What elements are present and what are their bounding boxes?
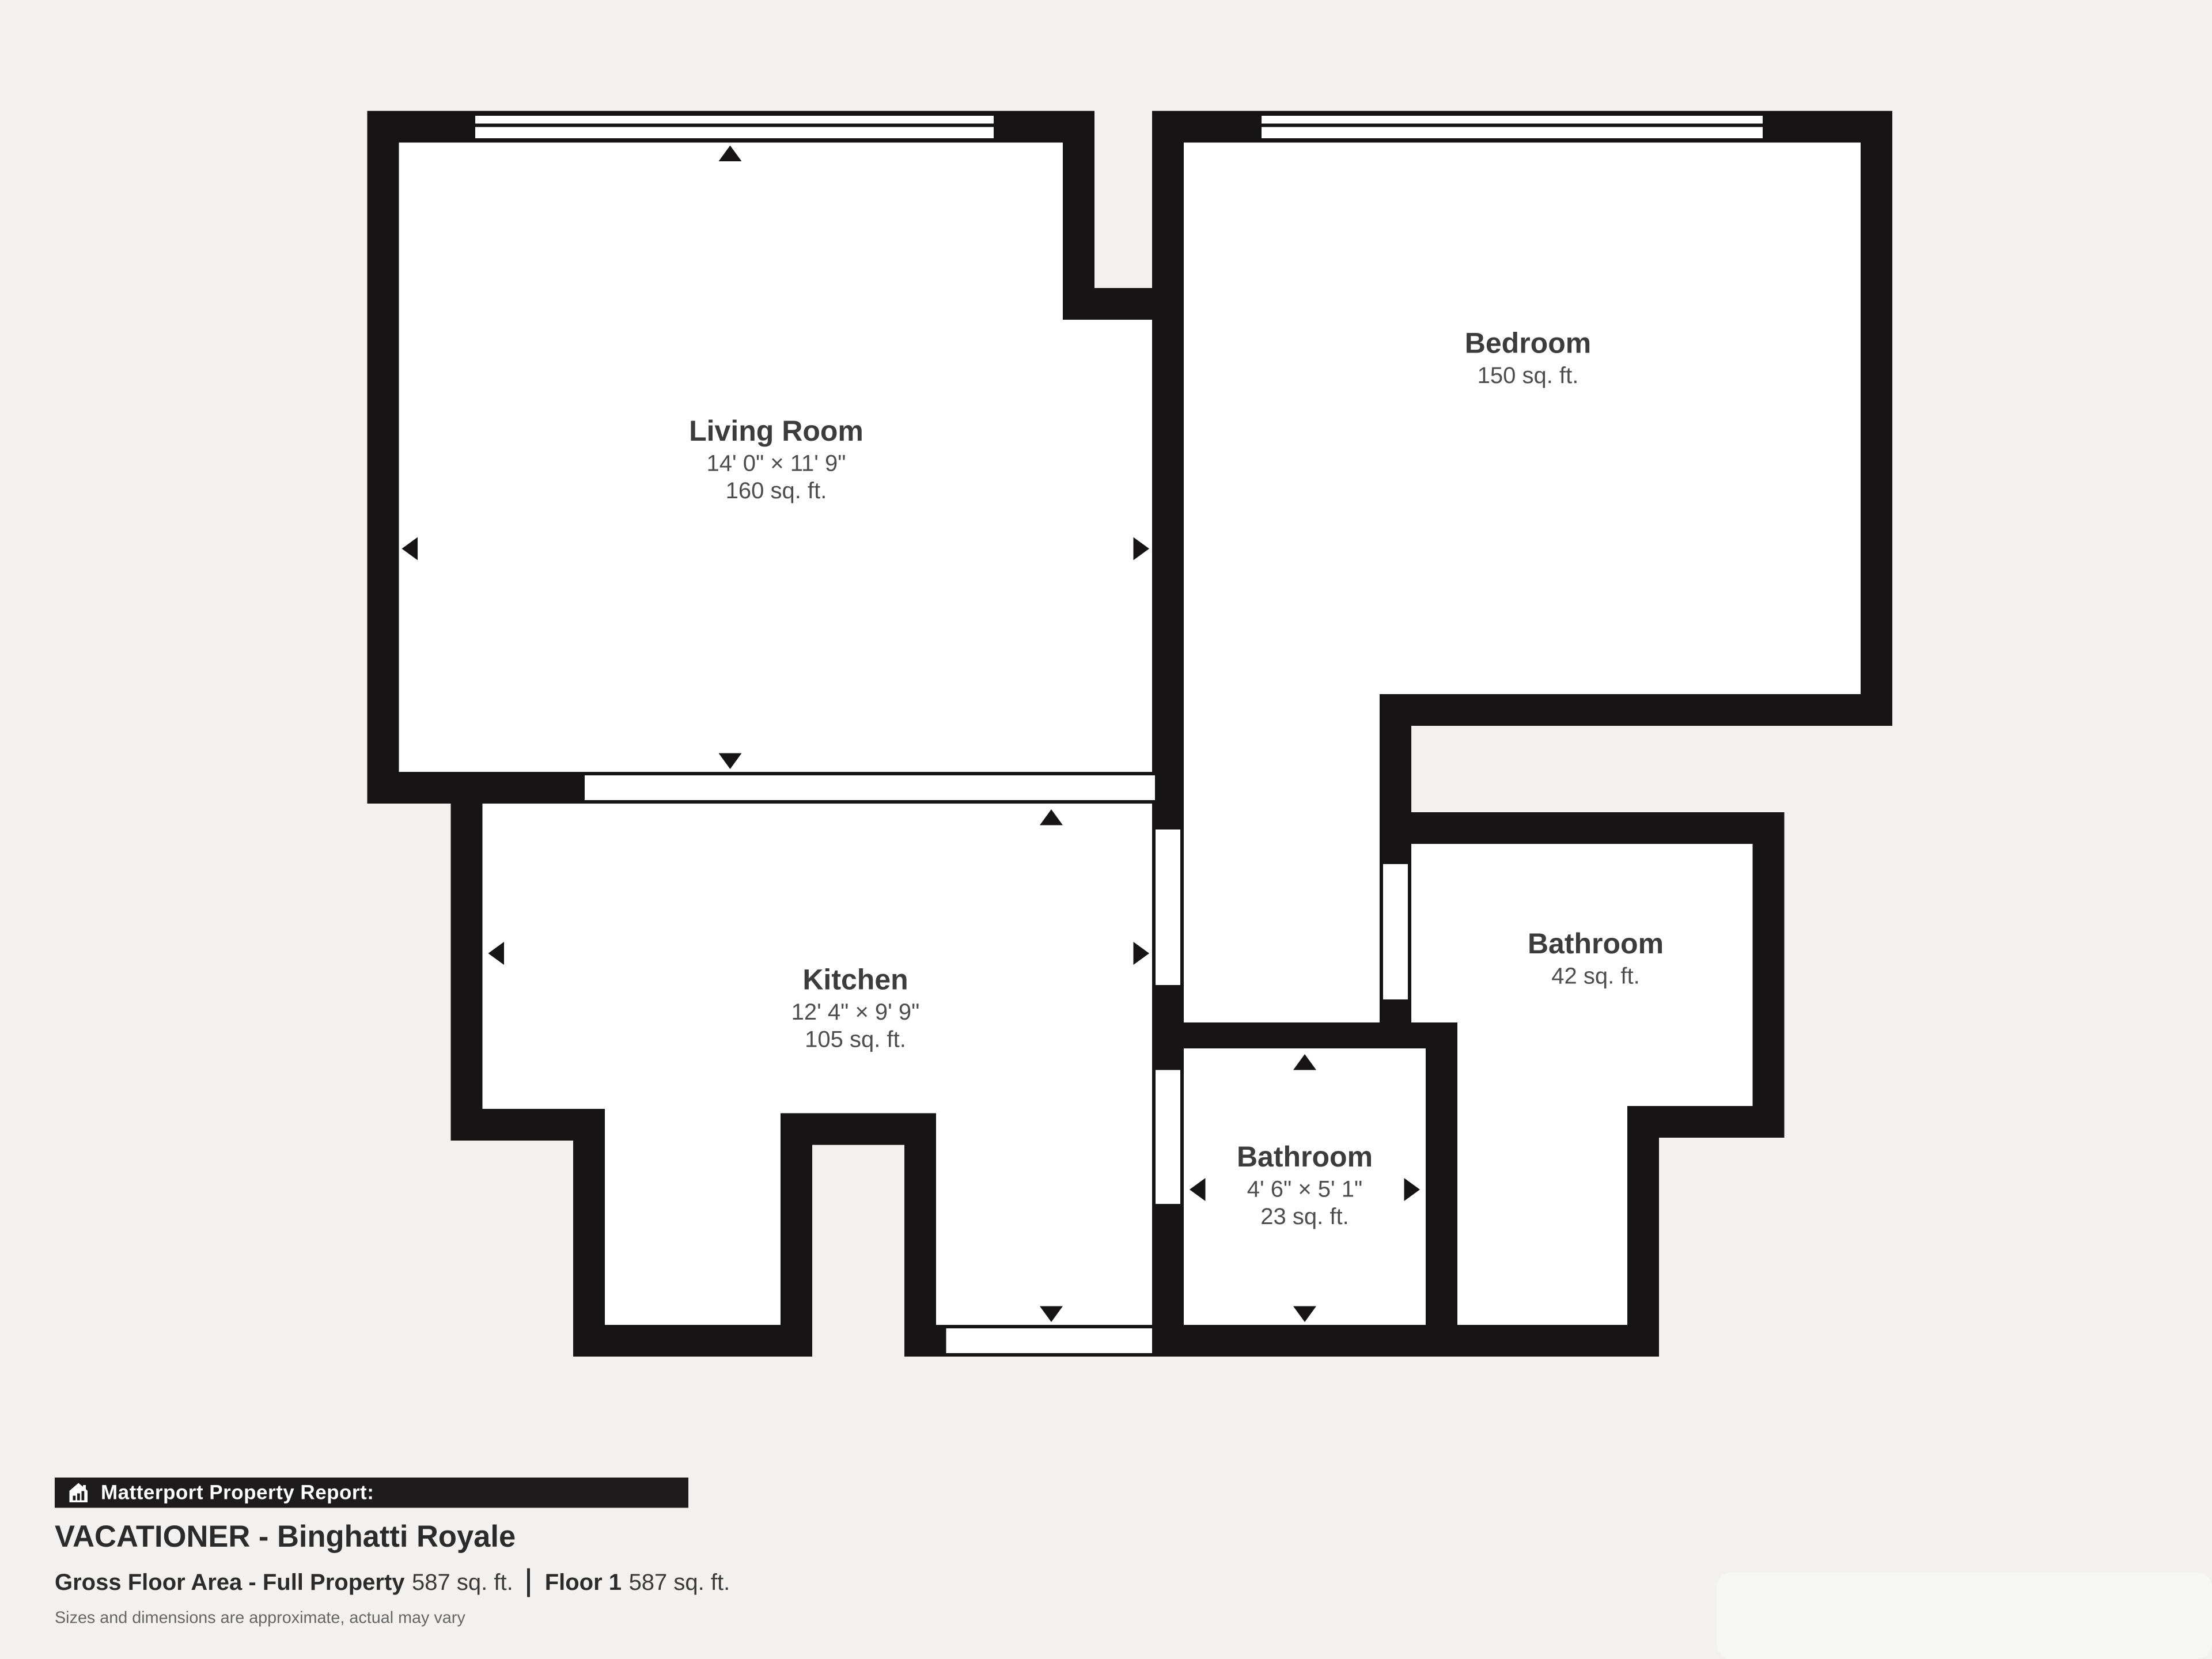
floor1-value: 587 sq. ft. [629, 1569, 730, 1597]
windows-layer [475, 112, 1763, 138]
opening-bathroom-bottom-door [1152, 1070, 1184, 1205]
window-bedroom-icon [1262, 112, 1763, 138]
room-title: Bedroom [1465, 327, 1591, 359]
room-dimensions: 14' 0" × 11' 9" [707, 451, 846, 476]
label-kitchen: Kitchen 12' 4" × 9' 9" 105 sq. ft. [791, 964, 920, 1052]
separator [528, 1569, 531, 1597]
room-title: Bathroom [1237, 1141, 1373, 1173]
report-title: Matterport Property Report: [101, 1478, 374, 1508]
label-bedroom: Bedroom 150 sq. ft. [1465, 327, 1591, 389]
room-area: 105 sq. ft. [805, 1027, 906, 1052]
opening-bathroom-right-door [1380, 864, 1411, 999]
floor-plan-page: Living Room 14' 0" × 11' 9" 160 sq. ft. … [0, 0, 2212, 1659]
gross-floor-area-value: 587 sq. ft. [412, 1569, 513, 1597]
room-area: 23 sq. ft. [1260, 1204, 1349, 1229]
report-header-bar: Matterport Property Report: [55, 1478, 688, 1508]
opening-corridor-upper [1152, 829, 1184, 985]
gross-floor-area-label: Gross Floor Area - Full Property [55, 1569, 405, 1597]
property-name: VACATIONER - Binghatti Royale [55, 1522, 516, 1554]
window-living-room-icon [475, 112, 994, 138]
room-area: 150 sq. ft. [1478, 363, 1579, 388]
house-chart-icon [68, 1482, 90, 1504]
room-title: Kitchen [802, 964, 908, 996]
opening-living-kitchen [585, 772, 1155, 804]
room-title: Bathroom [1528, 927, 1664, 960]
floor1-label: Floor 1 [545, 1569, 622, 1597]
room-dimensions: 4' 6" × 5' 1" [1247, 1177, 1362, 1202]
opening-entry [946, 1325, 1153, 1357]
floor-plan: Living Room 14' 0" × 11' 9" 160 sq. ft. … [0, 0, 2212, 1659]
room-area: 160 sq. ft. [726, 478, 827, 503]
floor-area-summary: Gross Floor Area - Full Property 587 sq.… [55, 1569, 730, 1597]
room-dimensions: 12' 4" × 9' 9" [791, 999, 920, 1025]
disclaimer-text: Sizes and dimensions are approximate, ac… [55, 1610, 465, 1629]
room-bathroom-right [1411, 844, 1753, 1325]
room-title: Living Room [689, 415, 863, 447]
watermark-area [1717, 1573, 2212, 1659]
room-area: 42 sq. ft. [1551, 964, 1639, 989]
